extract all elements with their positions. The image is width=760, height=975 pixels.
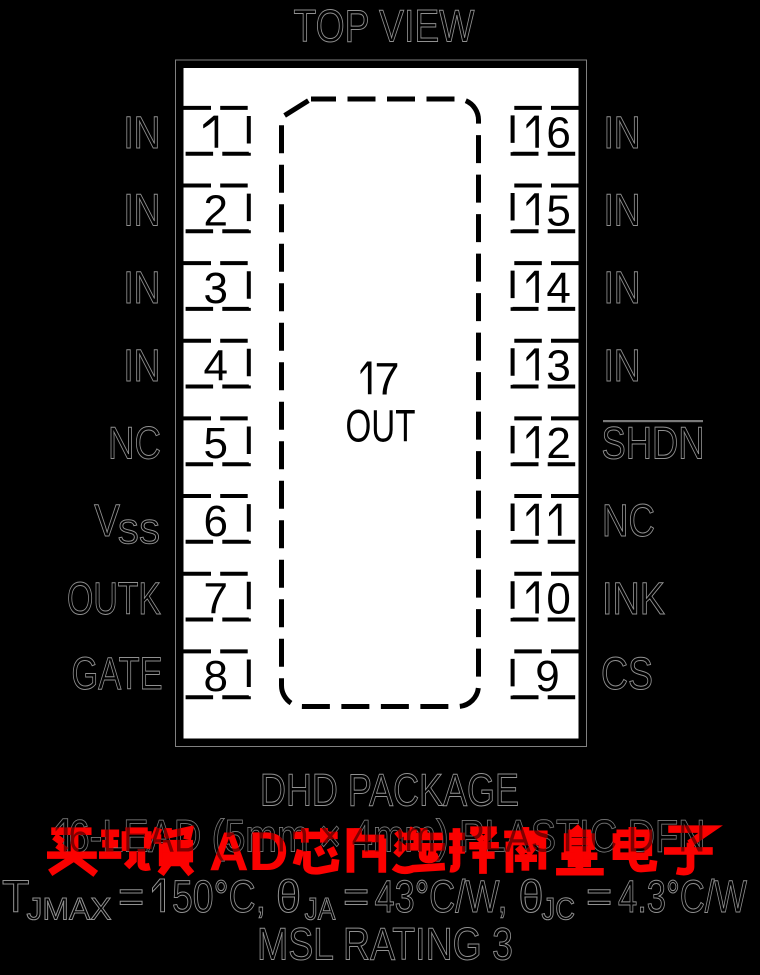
svg-text:JMAX: JMAX	[27, 890, 112, 926]
svg-text:4: 4	[546, 264, 570, 313]
svg-text:IN: IN	[604, 340, 641, 391]
svg-text:SS: SS	[118, 514, 161, 552]
svg-text:=: =	[343, 871, 369, 922]
svg-text:TOP VIEW: TOP VIEW	[294, 1, 475, 52]
svg-text:5: 5	[546, 186, 570, 235]
svg-text:IN: IN	[604, 107, 641, 158]
svg-text:6-LEAD (5mm × 4mm) PLASTIC DFN: 6-LEAD (5mm × 4mm) PLASTIC DFN	[69, 811, 706, 862]
svg-text:4: 4	[204, 342, 228, 391]
svg-text:9: 9	[535, 652, 559, 701]
svg-text:3: 3	[546, 342, 570, 391]
svg-text:8: 8	[204, 652, 228, 701]
svg-text:NC: NC	[108, 418, 161, 469]
svg-text:V: V	[94, 495, 120, 546]
svg-text:OUT: OUT	[346, 400, 416, 451]
svg-text:GATE: GATE	[72, 648, 163, 699]
svg-text:6: 6	[204, 497, 228, 546]
svg-text:5: 5	[204, 419, 228, 468]
svg-text:IN: IN	[123, 340, 160, 391]
svg-text:7: 7	[204, 575, 228, 624]
svg-text:=: =	[118, 871, 144, 922]
svg-text:=: =	[586, 871, 612, 922]
svg-text:θ: θ	[276, 871, 301, 922]
svg-text:IN: IN	[604, 262, 641, 313]
svg-text:θ: θ	[519, 871, 544, 922]
svg-text:INK: INK	[602, 573, 665, 624]
svg-text:2: 2	[204, 186, 228, 235]
svg-text:3: 3	[204, 264, 228, 313]
svg-text:CS: CS	[601, 648, 653, 699]
svg-text:OUTK: OUTK	[67, 573, 161, 624]
svg-text:50°C,: 50°C,	[172, 871, 266, 922]
svg-text:IN: IN	[123, 107, 160, 158]
svg-text:MSL RATING 3: MSL RATING 3	[257, 919, 513, 970]
svg-text:6: 6	[546, 109, 570, 158]
svg-text:43°C/W,: 43°C/W,	[375, 871, 508, 922]
svg-text:IN: IN	[123, 185, 160, 236]
svg-text:DHD PACKAGE: DHD PACKAGE	[260, 764, 519, 815]
svg-text:T: T	[2, 871, 30, 922]
svg-text:JC: JC	[542, 890, 576, 926]
svg-text:7: 7	[375, 353, 400, 404]
svg-text:0: 0	[546, 575, 570, 624]
svg-text:SHDN: SHDN	[602, 418, 705, 469]
svg-text:IN: IN	[604, 185, 641, 236]
svg-text:IN: IN	[123, 262, 160, 313]
svg-text:4.3°C/W: 4.3°C/W	[618, 871, 747, 922]
svg-text:2: 2	[546, 419, 570, 468]
svg-text:NC: NC	[602, 495, 655, 546]
